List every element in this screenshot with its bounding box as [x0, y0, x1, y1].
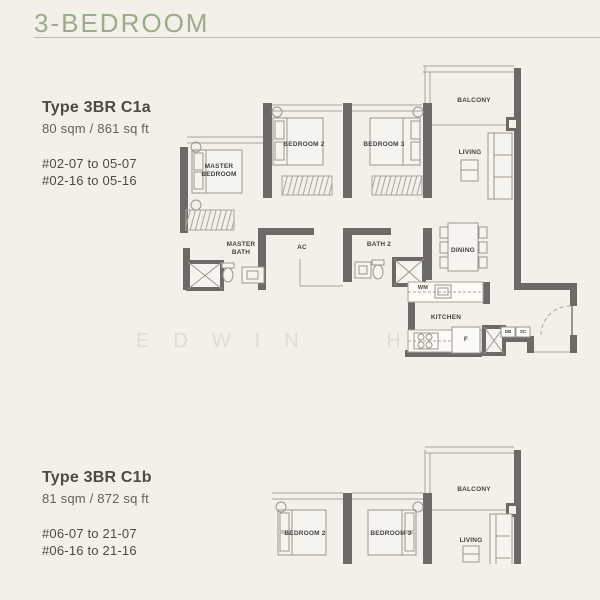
- room-label-ac: AC: [289, 244, 315, 252]
- room-label-master-bedroom: MASTER BEDROOM: [191, 163, 247, 180]
- room-label-balcony: BALCONY: [444, 486, 504, 494]
- entrance-door: [541, 306, 572, 335]
- room-label-sc: SC: [516, 329, 530, 335]
- master-bath-fixtures: [188, 262, 264, 289]
- unit-type-label: Type 3BR C1b: [42, 469, 212, 487]
- room-label-bedroom2: BEDROOM 2: [279, 530, 331, 538]
- room-label-bedroom3: BEDROOM 3: [358, 141, 410, 149]
- window-lines: [272, 447, 514, 510]
- room-label-fridge: F: [452, 336, 480, 344]
- room-label-kitchen: KITCHEN: [418, 314, 474, 322]
- unit-area-label: 81 sqm / 872 sq ft: [42, 491, 212, 506]
- floorplan-c1b: BEDROOM 2 BEDROOM 3 BALCONY LIVING: [272, 444, 522, 564]
- room-label-balcony: BALCONY: [444, 97, 504, 105]
- floorplan-c1a: MASTER BEDROOM BEDROOM 2 BEDROOM 3 BALCO…: [178, 55, 590, 370]
- unit-stack-list: #06-07 to 21-07 #06-16 to 21-16: [42, 526, 212, 560]
- room-label-wm: WM: [411, 285, 435, 292]
- coffee-table: [461, 160, 478, 181]
- coffee-table: [463, 546, 479, 562]
- room-label-db: DB: [501, 329, 515, 335]
- room-label-bedroom2: BEDROOM 2: [278, 141, 330, 149]
- room-label-master-bath: MASTER BATH: [216, 241, 266, 258]
- unit-stack-line: #06-16 to 21-16: [42, 543, 212, 560]
- room-label-living: LIVING: [448, 149, 492, 157]
- bath2-fixtures: [355, 259, 424, 285]
- unit-info-c1b: Type 3BR C1b 81 sqm / 872 sq ft #06-07 t…: [42, 469, 212, 560]
- floorplan-drawing: [272, 444, 522, 564]
- title-underline: [34, 37, 600, 38]
- unit-stack-line: #06-07 to 21-07: [42, 526, 212, 543]
- room-label-living: LIVING: [447, 537, 495, 545]
- floorplan-drawing: [178, 55, 590, 370]
- sofa: [488, 133, 512, 199]
- room-label-dining: DINING: [444, 247, 482, 255]
- page-title: 3-BEDROOM: [34, 8, 209, 39]
- room-label-bedroom3: BEDROOM 3: [365, 530, 417, 538]
- balcony-door-latch: [506, 117, 520, 131]
- room-label-bath2: BATH 2: [356, 241, 402, 249]
- brochure-page: { "page": { "title": "3-BEDROOM", "water…: [0, 0, 600, 600]
